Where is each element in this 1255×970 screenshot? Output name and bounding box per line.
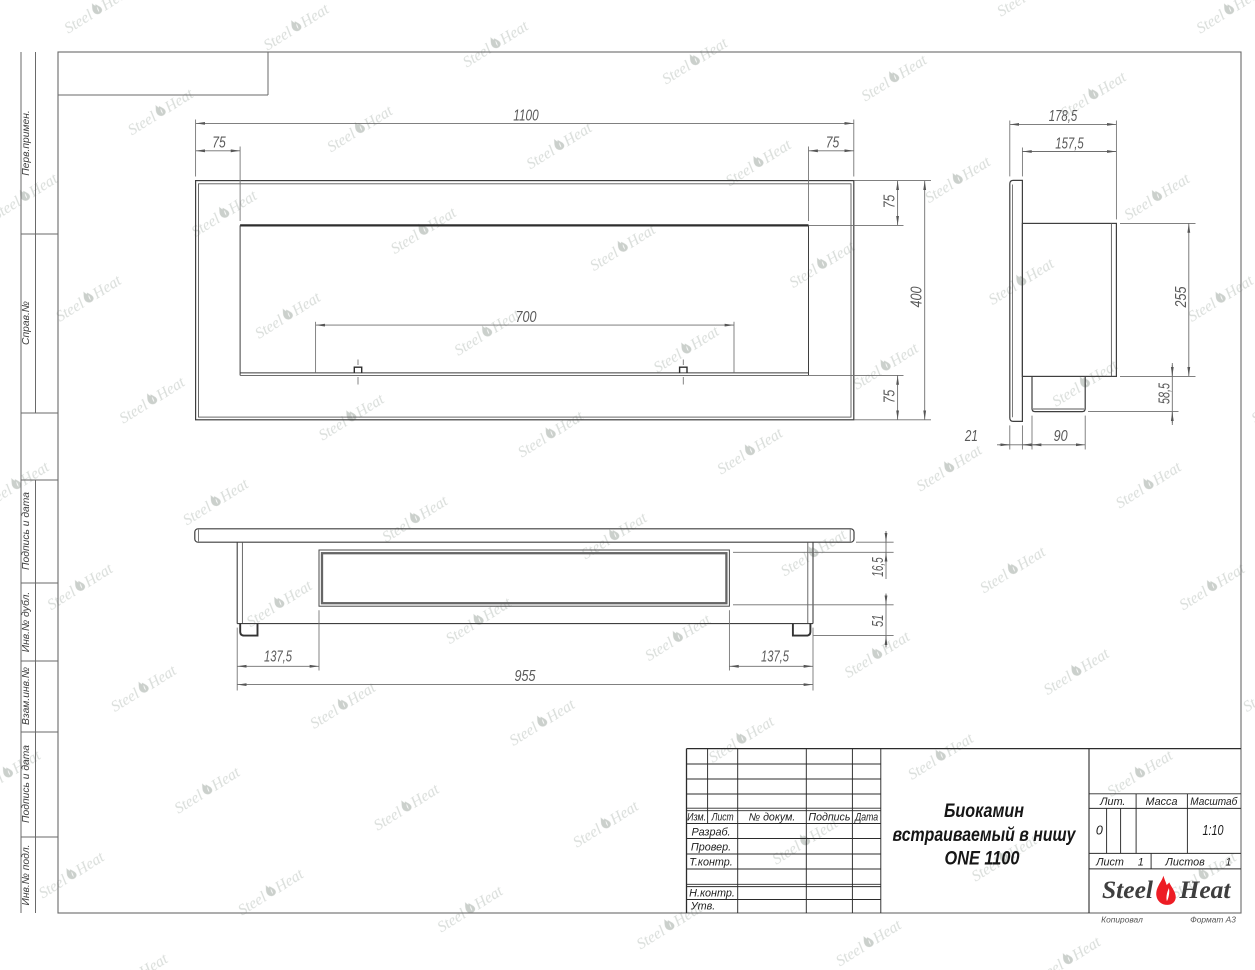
svg-text:Heat: Heat xyxy=(1179,875,1232,904)
svg-text:Инв.№ подл.: Инв.№ подл. xyxy=(21,844,32,905)
svg-text:21: 21 xyxy=(964,428,978,445)
svg-text:955: 955 xyxy=(515,668,536,685)
svg-text:Взам.инв.№: Взам.инв.№ xyxy=(21,667,32,725)
svg-text:16,5: 16,5 xyxy=(870,557,887,577)
svg-text:Т.контр.: Т.контр. xyxy=(689,857,733,869)
svg-text:Утв.: Утв. xyxy=(690,901,716,913)
svg-text:1100: 1100 xyxy=(513,107,539,124)
svg-text:0: 0 xyxy=(1096,823,1103,837)
svg-text:137,5: 137,5 xyxy=(761,649,789,666)
svg-text:Провер.: Провер. xyxy=(691,842,731,854)
svg-text:Лит.: Лит. xyxy=(1099,796,1125,808)
svg-text:Масштаб: Масштаб xyxy=(1190,796,1238,808)
svg-text:58,5: 58,5 xyxy=(1156,383,1173,404)
svg-text:Перв.примен.: Перв.примен. xyxy=(21,110,32,176)
svg-text:1: 1 xyxy=(1225,857,1231,869)
svg-text:Лист: Лист xyxy=(1095,857,1124,869)
svg-text:Копировал: Копировал xyxy=(1101,914,1143,924)
svg-text:90: 90 xyxy=(1054,428,1068,445)
svg-text:Подпись и дата: Подпись и дата xyxy=(21,492,32,570)
svg-text:75: 75 xyxy=(826,134,840,151)
svg-text:400: 400 xyxy=(909,286,926,307)
svg-text:Масса: Масса xyxy=(1146,796,1178,808)
svg-text:Дата: Дата xyxy=(854,811,878,823)
svg-text:Изм.: Изм. xyxy=(687,811,706,823)
svg-text:Справ.№: Справ.№ xyxy=(21,301,32,345)
svg-text:ONE 1100: ONE 1100 xyxy=(945,849,1020,870)
svg-text:Подпись: Подпись xyxy=(808,811,850,823)
svg-text:157,5: 157,5 xyxy=(1055,135,1084,152)
svg-text:255: 255 xyxy=(1173,286,1190,308)
svg-text:Steel: Steel xyxy=(1102,875,1154,904)
svg-text:№ докум.: № докум. xyxy=(749,811,796,823)
svg-text:137,5: 137,5 xyxy=(264,649,292,666)
svg-text:1:10: 1:10 xyxy=(1203,823,1224,839)
svg-text:Разраб.: Разраб. xyxy=(691,826,730,838)
svg-text:встраиваемый в нишу: встраиваемый в нишу xyxy=(893,825,1077,846)
svg-text:700: 700 xyxy=(516,309,537,326)
svg-text:51: 51 xyxy=(870,614,887,627)
svg-text:178,5: 178,5 xyxy=(1049,108,1078,125)
svg-text:75: 75 xyxy=(881,194,898,208)
svg-text:75: 75 xyxy=(881,389,898,403)
svg-text:Листов: Листов xyxy=(1164,857,1205,869)
svg-text:Н.контр.: Н.контр. xyxy=(689,888,735,900)
svg-text:Формат А3: Формат А3 xyxy=(1190,914,1236,924)
svg-text:Лист: Лист xyxy=(711,811,734,823)
svg-text:75: 75 xyxy=(212,134,226,151)
svg-text:Инв.№ дубл.: Инв.№ дубл. xyxy=(20,592,32,652)
svg-text:Подпись и дата: Подпись и дата xyxy=(21,745,32,823)
svg-text:1: 1 xyxy=(1138,857,1144,869)
svg-text:Биокамин: Биокамин xyxy=(944,801,1024,822)
